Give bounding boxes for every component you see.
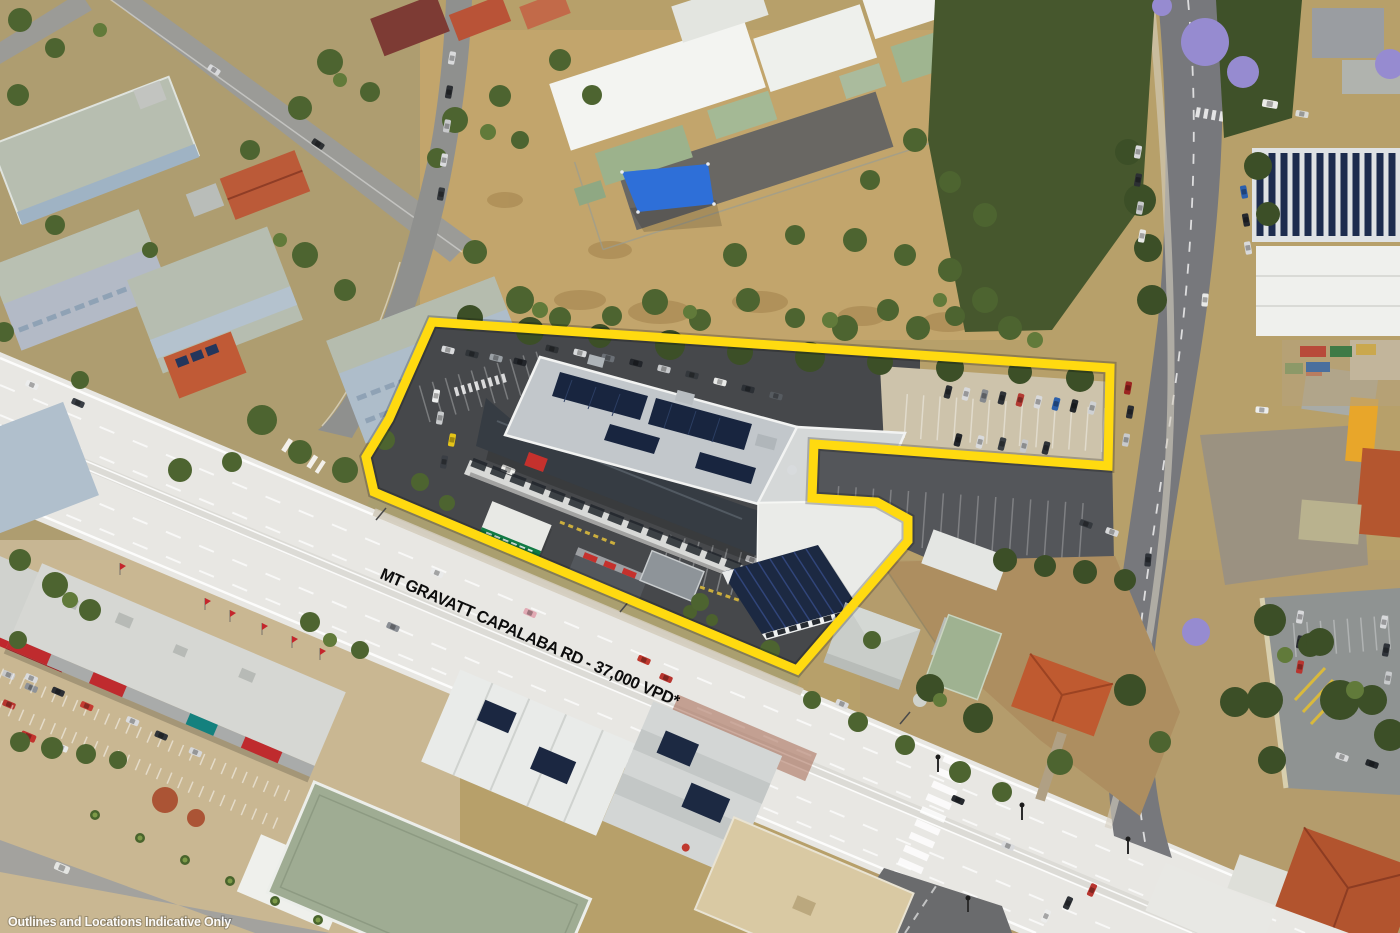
warehouse-roof	[1256, 246, 1400, 336]
aerial-scene: MT GRAVATT CAPALABA RD - 37,000 VPD* Out…	[0, 0, 1400, 933]
disclaimer-label: Outlines and Locations Indicative Only	[8, 915, 231, 929]
aerial-photo: MT GRAVATT CAPALABA RD - 37,000 VPD* Out…	[0, 0, 1400, 933]
